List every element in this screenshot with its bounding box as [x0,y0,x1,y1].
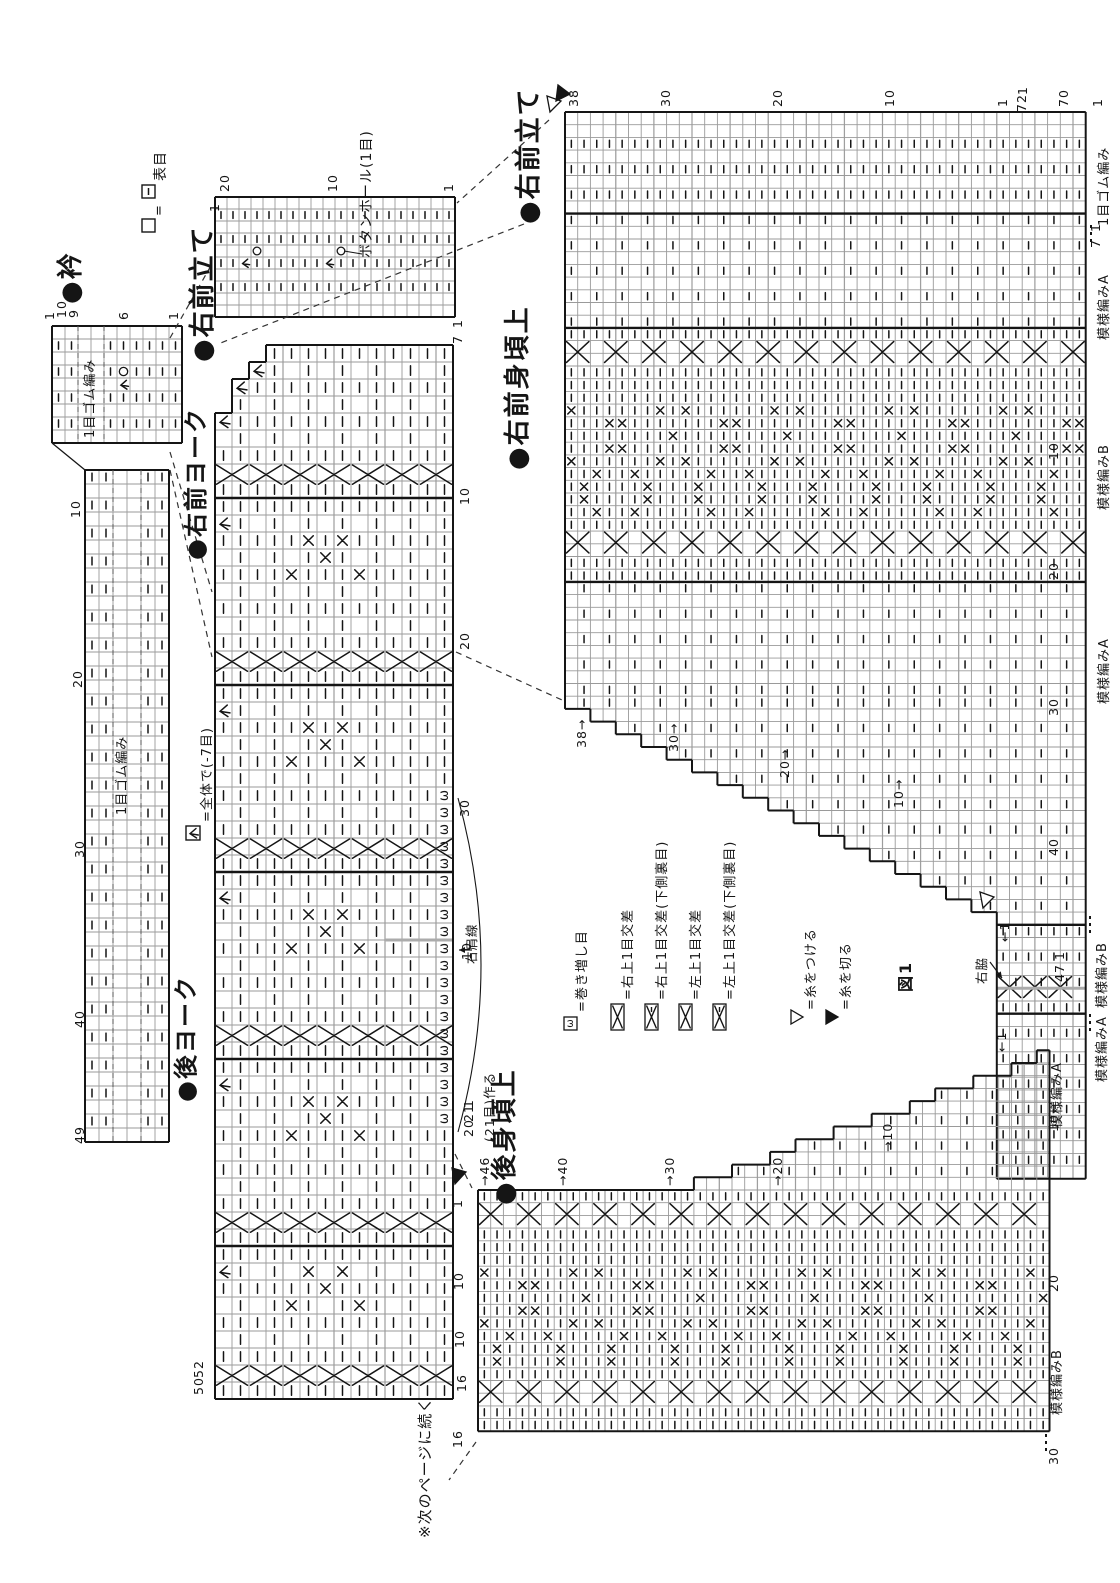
dashed-connector [456,652,562,700]
chart-number: 7 [1090,239,1103,248]
annotation-figure-1: 図1 [898,961,914,992]
svg-text:ω: ω [437,1062,452,1073]
chart-number: 10 [453,1272,466,1290]
legend-item-1 [611,1004,624,1030]
svg-text:ω: ω [437,1113,452,1124]
svg-text:ω: ω [437,824,452,835]
pattern-section-label: 1目ゴム編み [116,736,129,815]
chart-number: 50 [193,1377,206,1395]
svg-text:ω: ω [437,943,452,954]
legend-decrease-label: =全体で(-7目) [201,727,214,822]
chart-number: →46 [479,1157,492,1186]
knitting-pattern-page: ωωωωωωωωωωωωωωωωωωωωω ●衿●右前立て●右前ヨーク●後ヨーク… [0,0,1120,1583]
chart-back-upper [478,1050,1050,1431]
collar-connector [52,443,85,470]
chart-number: 72 [1016,94,1029,112]
section-header-right-front-yoke: ●右前ヨーク [184,407,208,560]
chart-number: 1 [997,98,1010,107]
chart-number: 30 [660,89,673,107]
pattern-section-label: 1目ゴム編み [84,359,97,438]
chart-number: 1 [443,183,456,192]
legend-item-6 [826,1010,838,1024]
chart-number: 1 [1054,951,1067,960]
legend-item-label: =右上1目交差(下側裏目) [656,841,669,1000]
chart-number: →30 [664,1157,677,1186]
pattern-section-label: 模様編みB [1098,444,1111,510]
chart-number: 20 [219,174,232,192]
annotation-make-21: (21目)作る [484,1072,497,1142]
pattern-section-label: 模様編みA [1098,638,1111,704]
chart-number: 38 [568,89,581,107]
svg-text:ω: ω [437,960,452,971]
svg-text:ω: ω [437,841,452,852]
chart-number: 38→ [576,719,589,748]
chart-number: 20 [1048,1274,1061,1292]
chart-number: 10 [1048,1114,1061,1132]
chart-yoke [215,345,453,1399]
legend-item-label: =巻き増し目 [576,930,589,1012]
chart-number: →20 [772,1157,785,1186]
chart-grids: ωωωωωωωωωωωωωωωωωωωωω [0,0,1120,1583]
chart-number: 1 [1090,223,1103,232]
section-header-back-yoke: ●後ヨーク [174,975,198,1102]
chart-number: 30 [74,840,87,858]
chart-number: 16 [456,1374,469,1392]
chart-number: 20→ [779,749,792,778]
chart-number: 20 [772,89,785,107]
chart-number: 7 [452,335,465,344]
svg-text:ω: ω [437,909,452,920]
pattern-section-label: 模様編みA [1096,1016,1109,1082]
chart-number: 1 [209,203,222,212]
legend-knit-label: 表目 [154,151,168,181]
chart-number: 10 [884,89,897,107]
pattern-section-label: 1目ゴム編み [1098,147,1111,226]
legend-item-label: =糸を切る [840,942,853,1010]
section-header-right-front-band-1: ●右前立て [190,225,216,362]
legend-item-5 [791,1010,803,1024]
chart-number: 70 [1058,89,1071,107]
annotation-right-side-seam: 右脇 [976,957,989,984]
brace-curve [458,798,481,1132]
chart-number: 1 [452,1199,465,1208]
svg-text:ω: ω [437,1028,452,1039]
chart-number: ←1 [999,922,1012,942]
svg-text:ω: ω [565,1019,576,1027]
chart-front-band [215,197,455,317]
chart-number: 10 [461,942,474,960]
chart-number: 30→ [668,723,681,752]
legend-equals: = [153,204,166,216]
legend-item-4 [713,1004,726,1030]
chart-number: 6 [118,311,131,320]
chart-number: 47 [1054,964,1067,982]
legend-item-label: =左上1目交差(下側裏目) [724,841,737,1000]
section-header-right-front-band-2: ●右前立て [516,87,542,224]
svg-text:ω: ω [437,807,452,818]
chart-number: 10 [327,174,340,192]
chart-number: 1 [1092,98,1105,107]
section-header-collar: ●衿 [58,251,84,304]
chart-number: 20 [1048,562,1061,580]
legend-item-label: =糸をつける [805,928,818,1010]
chart-number: 1 [168,311,181,320]
chart-number: 20 [463,1119,476,1137]
chart-number: 10 [70,500,83,518]
chart-number: ←1 [996,1032,1009,1052]
chart-number: 10 [459,487,472,505]
section-header-right-front-body-upper: ●右前身頃上 [505,305,531,470]
annotation-next-page: ※次のページに続く [418,1397,433,1538]
yarn-marker-tri-filled [452,1168,466,1184]
svg-text:ω: ω [437,892,452,903]
chart-number: 16 [452,1430,465,1448]
chart-number: 20 [72,670,85,688]
chart-number: 20 [459,632,472,650]
legend-item-label: =左上1目交差 [690,909,703,1000]
chart-collar-top [52,326,182,443]
svg-text:ω: ω [437,994,452,1005]
chart-number: 40 [1048,838,1061,856]
chart-number: 30 [459,799,472,817]
pattern-section-label: 模様編みA [1098,274,1111,340]
chart-number: 10→ [893,779,906,808]
chart-number: 40 [74,1010,87,1028]
svg-text:ω: ω [437,790,452,801]
yarn-marker-tri-open [980,892,994,908]
chart-number: 10 [454,1330,467,1348]
svg-text:ω: ω [437,1079,452,1090]
chart-number: 10 [1048,442,1061,460]
svg-text:ω: ω [437,875,452,886]
svg-text:ω: ω [437,926,452,937]
chart-number: 52 [193,1360,206,1378]
svg-text:ω: ω [437,858,452,869]
pattern-section-label: 模様編みB [1051,1349,1064,1415]
chart-number: 30 [1048,698,1061,716]
chart-number: 49 [74,1126,87,1144]
svg-text:ω: ω [437,1096,452,1107]
chart-number: →10 [882,1123,895,1152]
svg-text:ω: ω [437,1011,452,1022]
legend-decrease-total [186,826,200,840]
legend-item-3 [679,1004,692,1030]
chart-number: 30 [1048,1447,1061,1465]
chart-number: 1 [452,319,465,328]
annotation-buttonhole: ボタンホール(1目) [360,130,374,258]
chart-number: →40 [557,1157,570,1186]
legend-item-label: =右上1目交差 [622,909,635,1000]
legend-item-2 [645,1004,658,1030]
chart-number: 9 [68,309,81,318]
svg-text:ω: ω [437,977,452,988]
svg-text:ω: ω [437,1045,452,1056]
pattern-section-label: 模様編みB [1096,942,1109,1008]
